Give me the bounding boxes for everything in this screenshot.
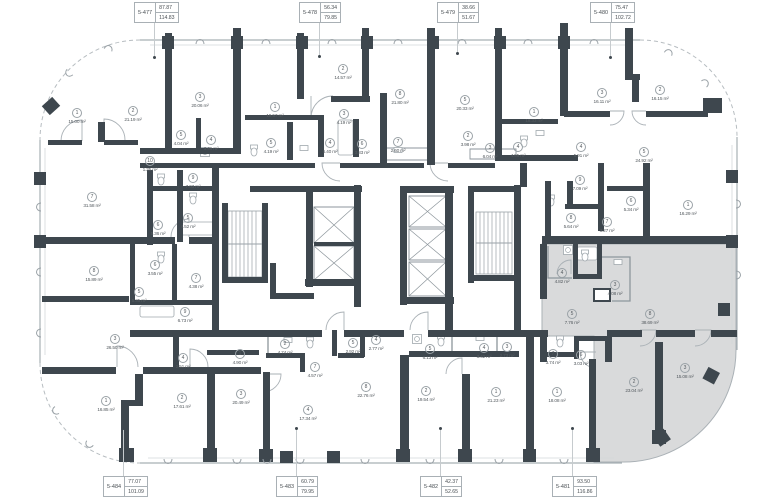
floor-plan-drawing [0, 0, 770, 500]
unit-id: 5-484 [104, 477, 125, 496]
unit-id: 5-483 [277, 477, 298, 496]
unit-label-5-478[interactable]: 5-47856.3479.85 [299, 2, 341, 23]
unit-id: 5-478 [300, 3, 321, 22]
unit-areas: 42.3752.65 [442, 477, 461, 496]
unit-areas: 60.7979.95 [298, 477, 317, 496]
stairs-left [228, 211, 262, 277]
duct-shaft [594, 289, 610, 301]
unit-marker-dot [439, 427, 442, 430]
stairs-right [476, 212, 512, 274]
unit-id: 5-480 [591, 3, 612, 22]
unit-leader-line [457, 22, 458, 53]
unit-label-5-479[interactable]: 5-47938.6651.67 [437, 2, 479, 23]
unit-id: 5-481 [553, 477, 574, 496]
unit-marker-dot [571, 427, 574, 430]
unit-leader-line [123, 428, 124, 476]
unit-leader-line [296, 428, 297, 476]
unit-label-5-481[interactable]: 5-48193.50116.86 [552, 476, 597, 497]
unit-label-5-483[interactable]: 5-48360.7979.95 [276, 476, 318, 497]
unit-marker-dot [456, 52, 459, 55]
unit-leader-line [319, 22, 320, 56]
unit-id: 5-477 [135, 3, 156, 22]
unit-leader-line [610, 22, 611, 57]
unit-leader-line [572, 428, 573, 476]
unit-id: 5-479 [438, 3, 459, 22]
unit-areas: 77.07101.09 [125, 477, 147, 496]
unit-label-5-480[interactable]: 5-48075.47102.72 [590, 2, 635, 23]
unit-marker-dot [122, 427, 125, 430]
unit-areas: 93.50116.86 [574, 477, 595, 496]
unit-marker-dot [318, 55, 321, 58]
unit-label-5-482[interactable]: 5-48242.3752.65 [420, 476, 462, 497]
unit-marker-dot [609, 56, 612, 59]
unit-areas: 38.6651.67 [459, 3, 478, 22]
unit-areas: 75.47102.72 [612, 3, 634, 22]
floor-plan: 5-47787.87114.835-47856.3479.855-47938.6… [0, 0, 770, 500]
unit-areas: 56.3479.85 [321, 3, 340, 22]
unit-label-5-477[interactable]: 5-47787.87114.83 [134, 2, 179, 23]
unit-label-5-484[interactable]: 5-48477.07101.09 [103, 476, 148, 497]
unit-marker-dot [153, 56, 156, 59]
unit-id: 5-482 [421, 477, 442, 496]
unit-marker-dot [295, 427, 298, 430]
unit-leader-line [440, 428, 441, 476]
unit-leader-line [154, 22, 155, 57]
unit-areas: 87.87114.83 [156, 3, 177, 22]
